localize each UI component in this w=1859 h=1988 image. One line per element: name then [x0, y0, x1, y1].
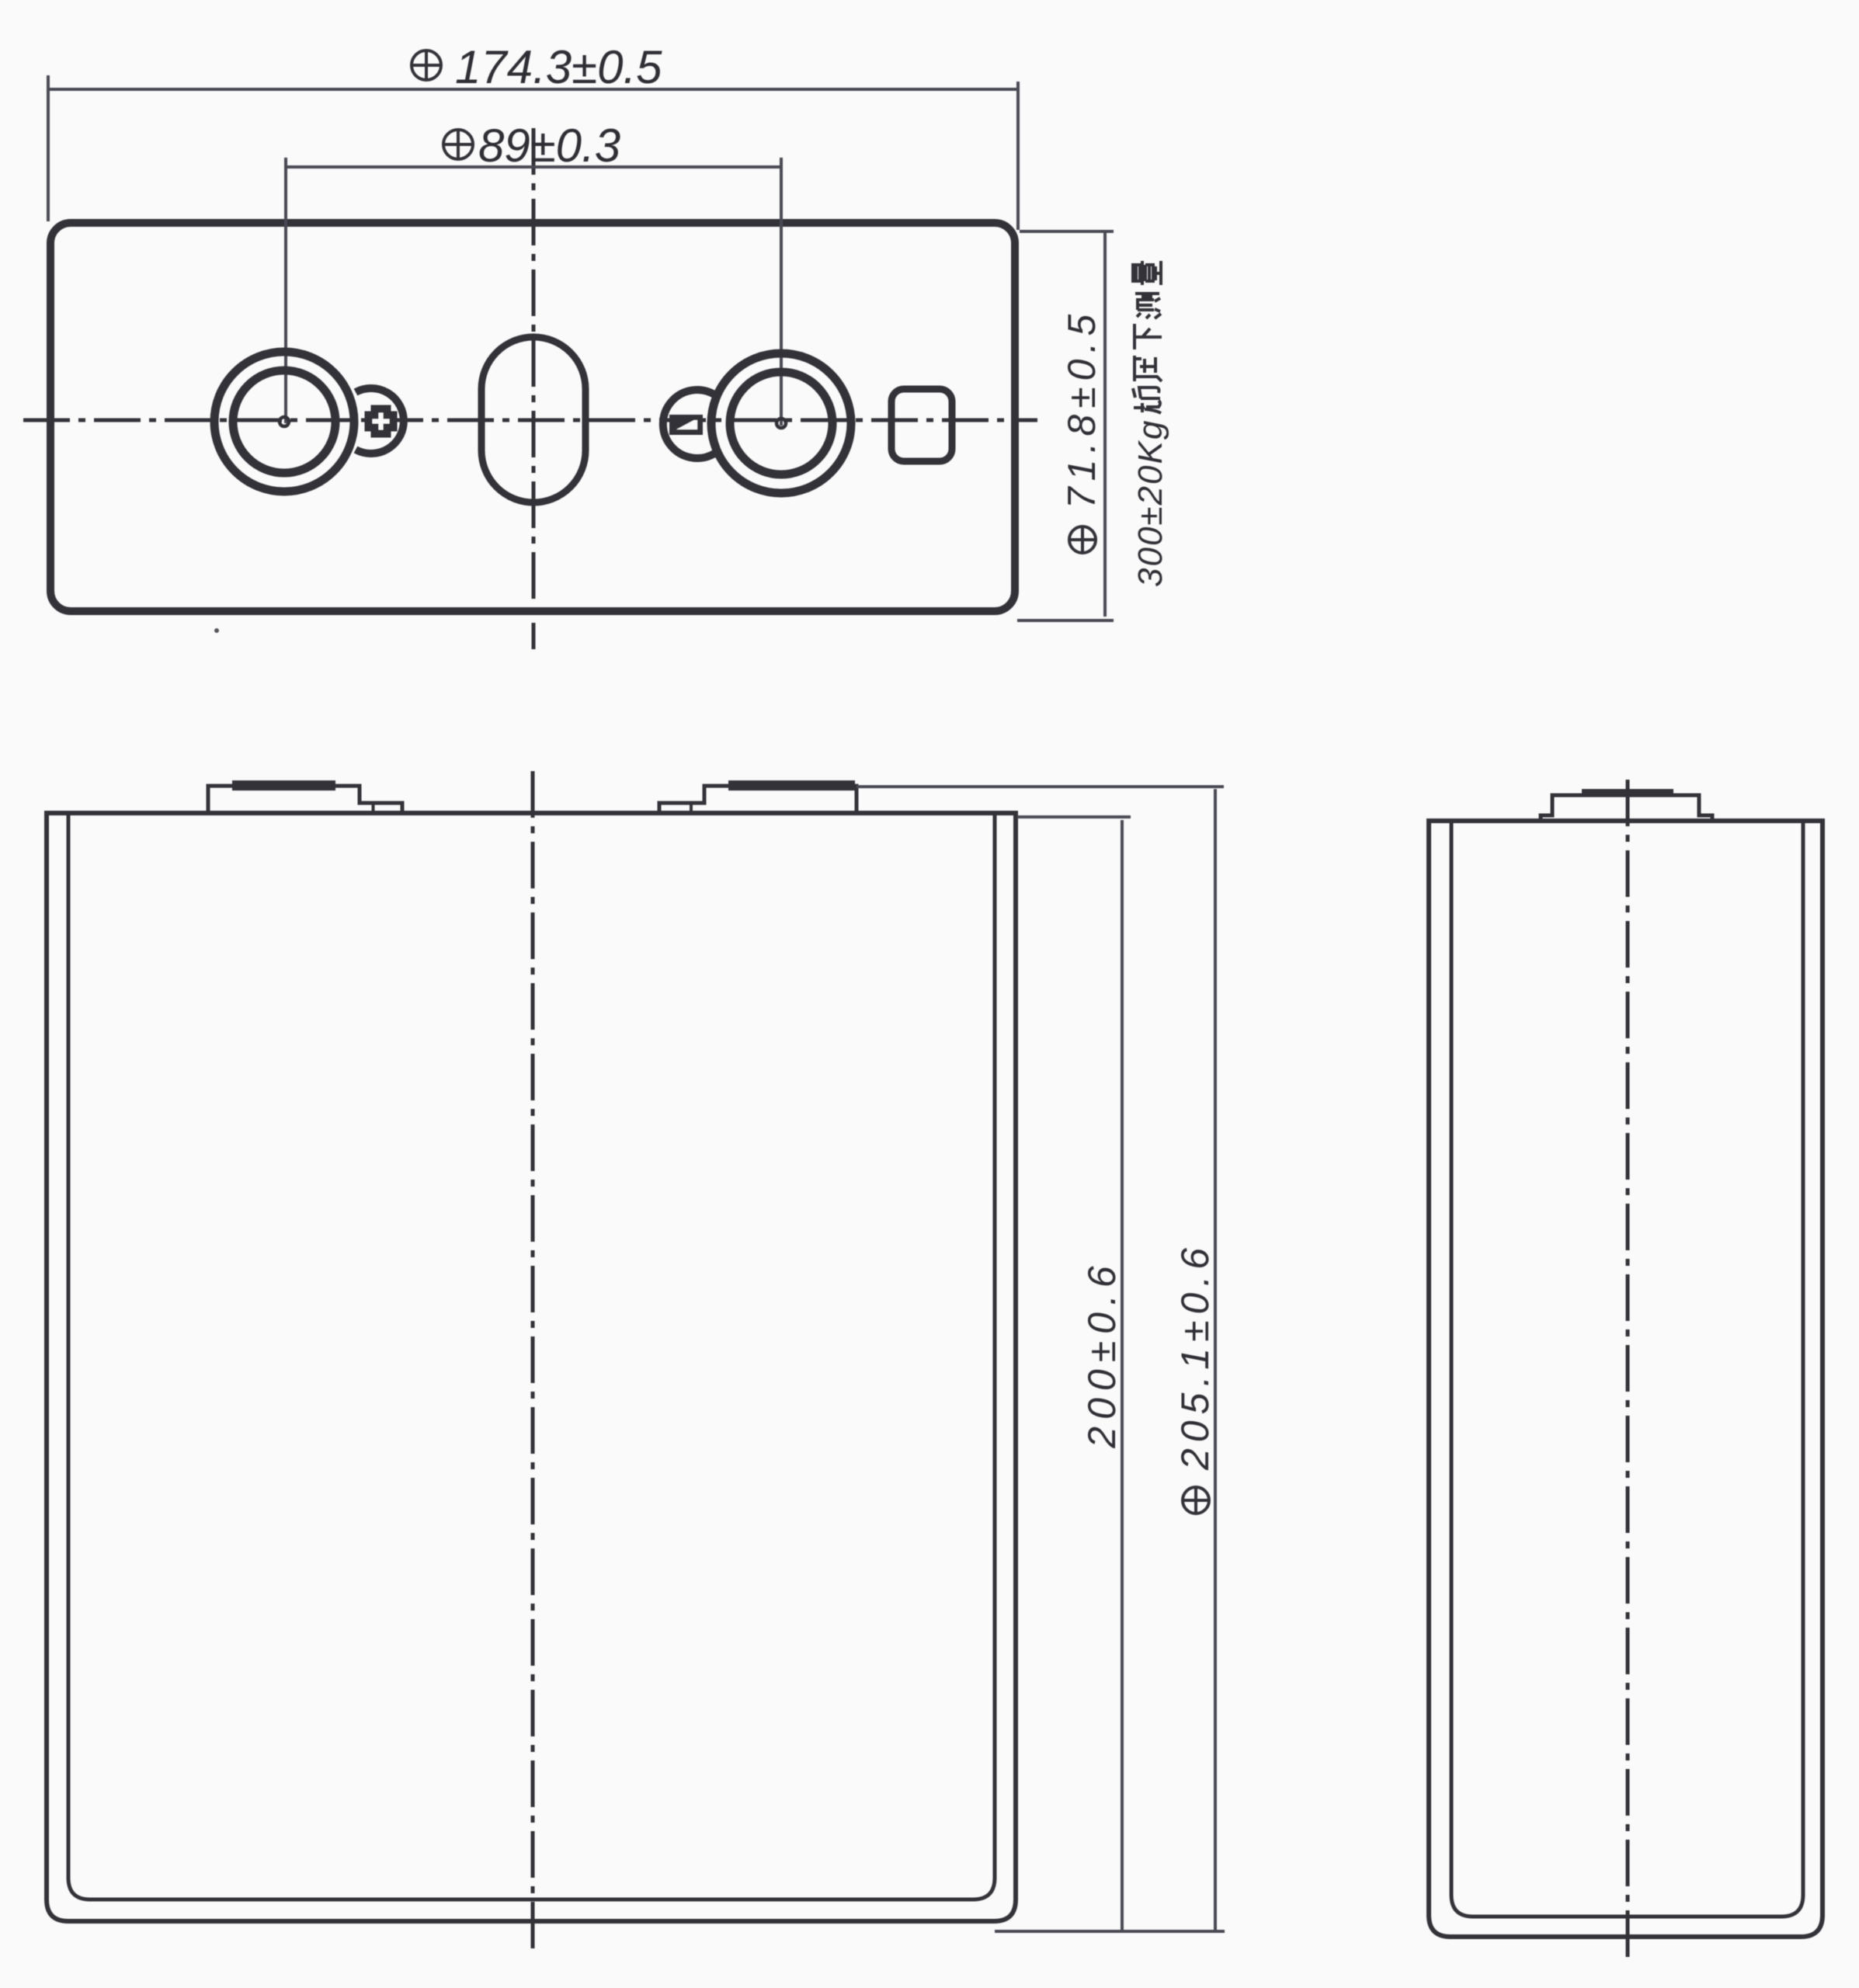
svg-text:300±20Kg: 300±20Kg — [1131, 419, 1169, 587]
svg-text:205.1±0.6: 205.1±0.6 — [1173, 1242, 1217, 1471]
svg-text:71.8±0.5: 71.8±0.5 — [1060, 308, 1103, 509]
svg-text:174.3±0.5: 174.3±0.5 — [455, 41, 662, 93]
svg-text:89±0.3: 89±0.3 — [478, 120, 620, 172]
svg-text:200±0.6: 200±0.6 — [1080, 1259, 1124, 1448]
